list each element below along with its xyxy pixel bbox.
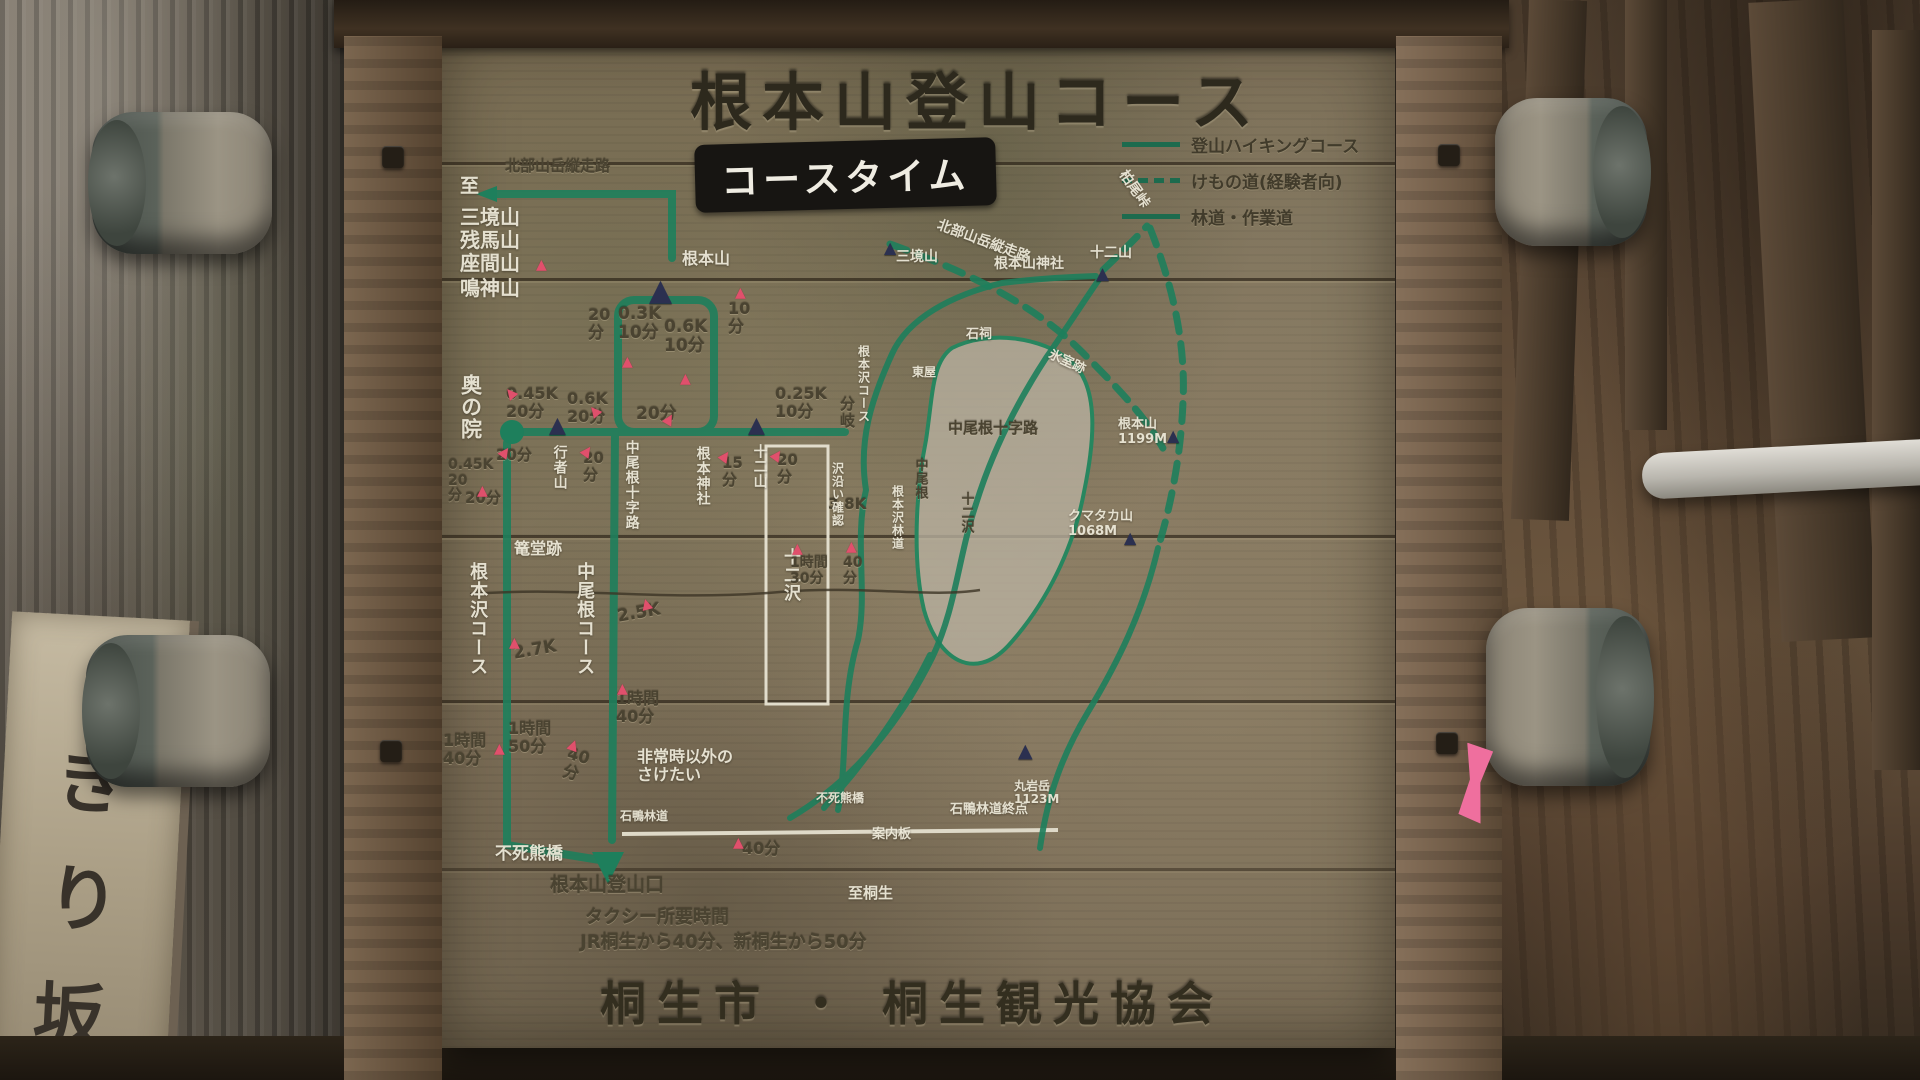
log-end-cap [82,643,140,779]
plank-seam [438,535,1395,538]
plank-seam [438,700,1395,703]
solid-line-icon [1122,142,1180,147]
solid-line-icon [1122,214,1180,219]
tree-trunk [1872,30,1920,770]
log-clamp [86,635,270,787]
top-cap-beam [334,0,1509,48]
bolt [1438,144,1460,166]
legend-item: 登山ハイキングコース [1122,132,1359,157]
bolt [382,146,404,168]
legend: 登山ハイキングコース けもの道(経験者向) 林道・作業道 [1122,132,1359,240]
legend-item: 林道・作業道 [1122,204,1359,229]
dashed-line-icon [1122,178,1180,183]
photo-of-trailhead-signboard: き り 坂 根本山登山コース コースタイム 登山ハイキングコース けもの道(経験… [0,0,1920,1080]
log-end-cap [1596,616,1654,778]
log-end-cap [1593,106,1651,238]
plank-seam [438,868,1395,871]
legend-label: けもの道(経験者向) [1191,168,1343,193]
right-post [1396,36,1502,1080]
sign-title: 根本山登山コース [690,52,1263,142]
course-time-heading-label: コースタイム [721,154,971,204]
plank-seam [438,278,1395,281]
log-clamp [1495,98,1647,246]
legend-label: 林道・作業道 [1191,204,1293,229]
bolt [1436,732,1458,754]
log-end-cap [88,120,146,246]
left-post [344,36,442,1080]
log-clamp [1486,608,1650,786]
legend-label: 登山ハイキングコース [1191,132,1359,157]
legend-item: けもの道(経験者向) [1122,168,1359,193]
log-clamp [92,112,272,254]
course-time-heading: コースタイム [694,137,997,213]
credit-text: 桐生市 ・ 桐生観光協会 [600,968,1224,1034]
bolt [380,740,402,762]
side-sign-character: り [45,862,121,938]
